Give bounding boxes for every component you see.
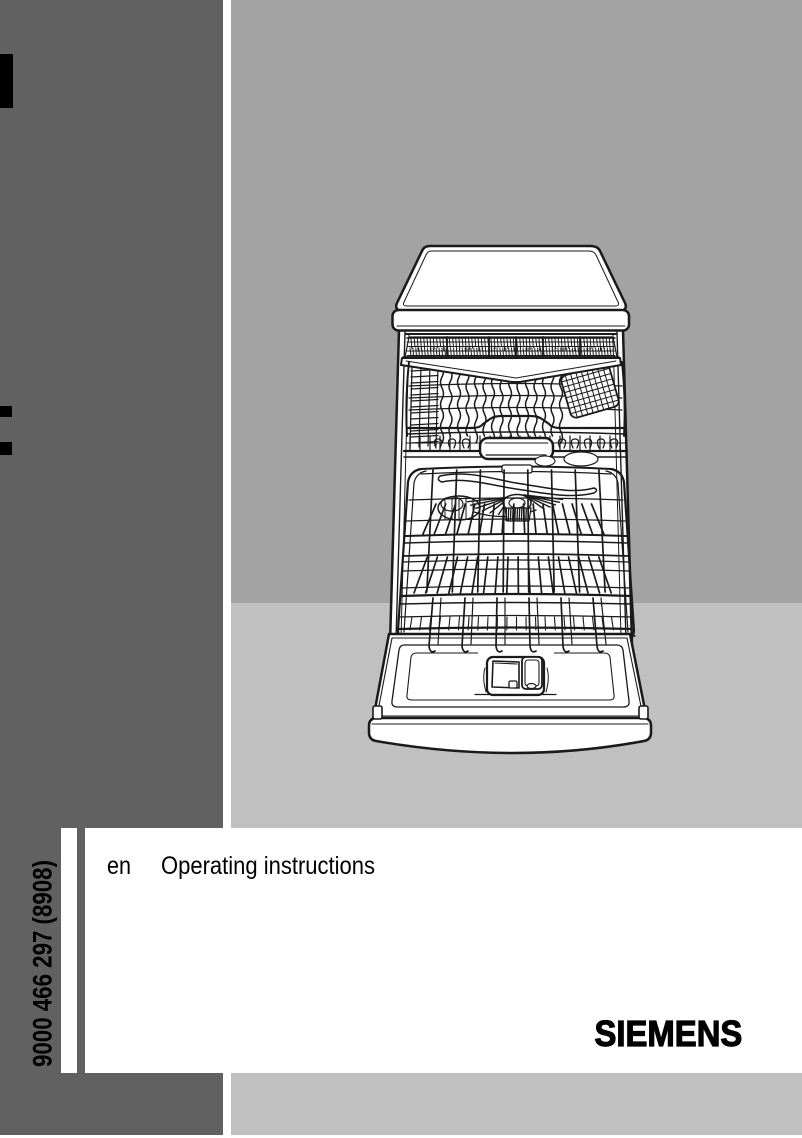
svg-text:9000 466 297 (8908): 9000 466 297 (8908) (28, 860, 58, 1067)
svg-text:SIEMENS: SIEMENS (595, 1015, 743, 1055)
svg-text:en: en (107, 852, 131, 880)
svg-text:Operating instructions: Operating instructions (161, 852, 375, 880)
